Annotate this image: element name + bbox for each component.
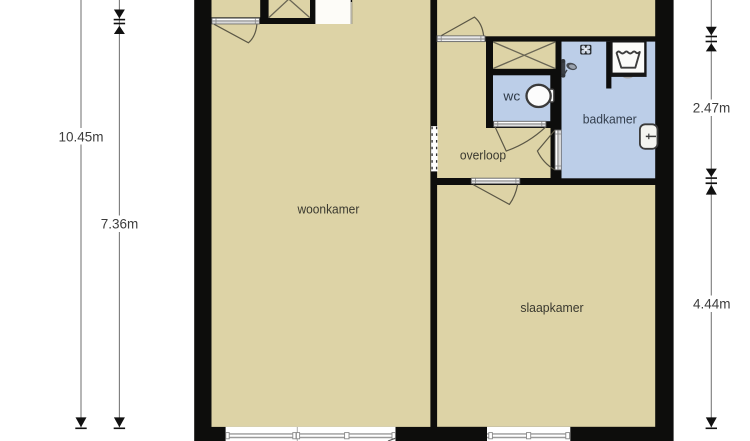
svg-text:slaapkamer: slaapkamer: [520, 300, 584, 315]
svg-text:badkamer: badkamer: [583, 112, 638, 127]
svg-text:7.36m: 7.36m: [101, 217, 139, 232]
svg-text:overloop: overloop: [460, 147, 506, 162]
svg-text:woonkamer: woonkamer: [297, 202, 360, 217]
svg-text:4.44m: 4.44m: [693, 297, 731, 312]
svg-text:10.45m: 10.45m: [58, 130, 103, 145]
svg-text:wc: wc: [502, 89, 520, 104]
svg-text:2.47m: 2.47m: [693, 101, 731, 116]
